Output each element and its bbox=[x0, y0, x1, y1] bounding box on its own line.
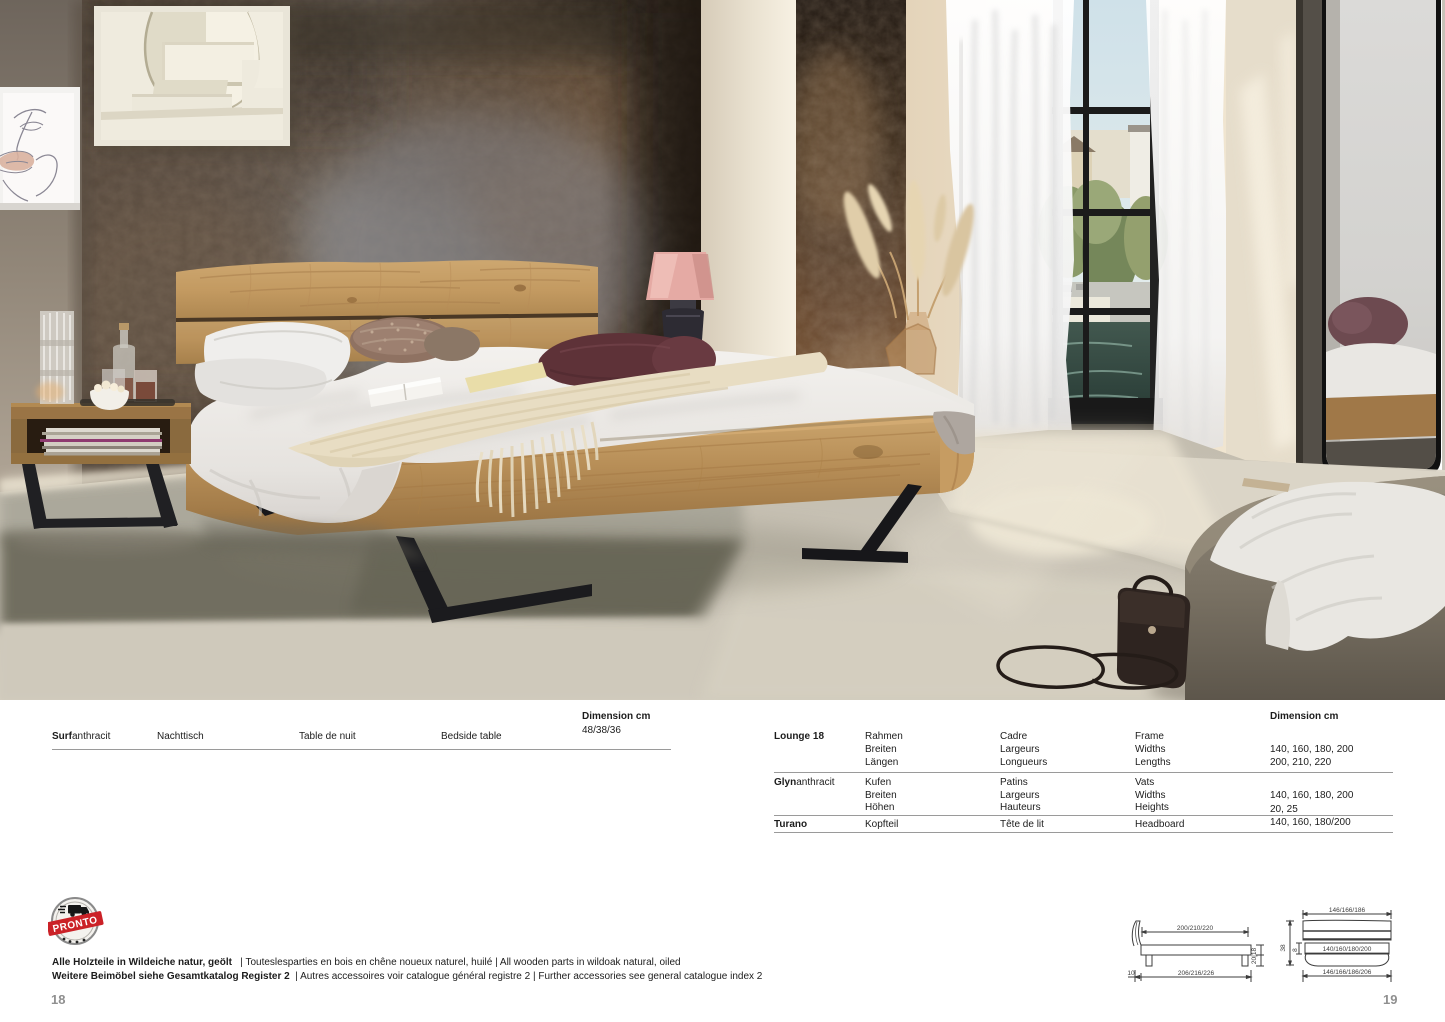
svg-text:200/210/220: 200/210/220 bbox=[1177, 925, 1214, 932]
svg-text:10: 10 bbox=[1127, 970, 1135, 977]
svg-text:38: 38 bbox=[1280, 944, 1287, 952]
svg-text:8: 8 bbox=[1292, 948, 1299, 952]
svg-text:206/216/226: 206/216/226 bbox=[1178, 970, 1215, 977]
svg-text:146/166/186: 146/166/186 bbox=[1329, 907, 1366, 914]
svg-text:20|18: 20|18 bbox=[1251, 948, 1258, 965]
svg-text:146/166/186/206: 146/166/186/206 bbox=[1323, 969, 1372, 976]
svg-text:140/160/180/200: 140/160/180/200 bbox=[1323, 946, 1372, 953]
